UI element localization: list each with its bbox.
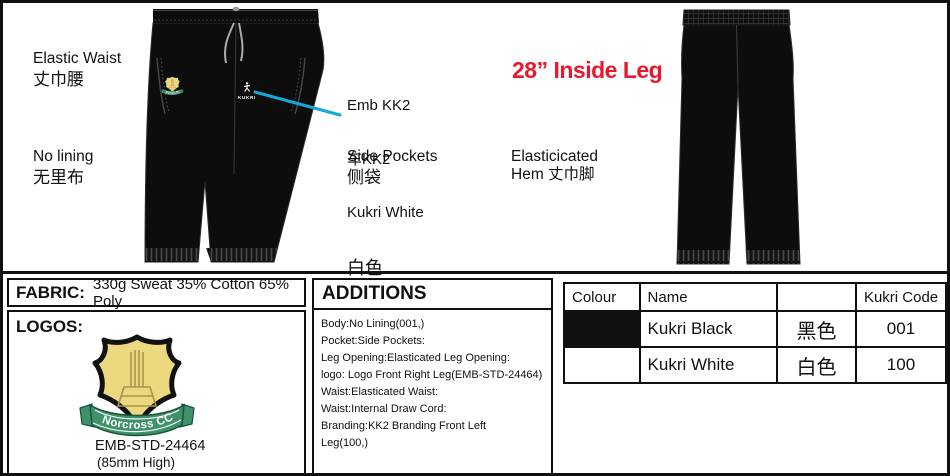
label-inside-leg: 28” Inside Leg (512, 57, 662, 83)
colour-table-header: Colour Name Kukri Code (564, 283, 946, 311)
colour-code: 001 (856, 311, 946, 347)
additions-box: ADDITIONS Body:No Lining(001,) Pocket:Si… (312, 278, 553, 475)
additions-list: Body:No Lining(001,) Pocket:Side Pockets… (314, 310, 551, 452)
label-elastic-waist-zh: 丈巾腰 (33, 70, 84, 90)
label-kukri-white: Kukri White (347, 204, 424, 221)
colour-table: Colour Name Kukri Code Kukri Black 黑色 00… (563, 282, 947, 384)
label-side-pockets: Side Pockets (347, 148, 437, 166)
crest-code: EMB-STD-24464 (95, 438, 205, 454)
addition-item: Waist:Elasticated Waist: (321, 384, 545, 401)
colour-name: Kukri White (640, 347, 778, 383)
header-name: Name (640, 283, 778, 311)
addition-item: Leg Opening:Elasticated Leg Opening: (321, 350, 545, 367)
pants-front-illustration: KUKRI (144, 6, 326, 268)
fabric-label: FABRIC: (16, 283, 85, 303)
table-row: Kukri Black 黑色 001 (564, 311, 946, 347)
ribbed-hem-left (677, 250, 730, 264)
addition-item: Branding:KK2 Branding Front Left Leg(100… (321, 418, 545, 452)
ribbed-hem-right (747, 250, 800, 264)
garment-views-section: KUKRI Elastic Waist 丈巾腰 No lining 无里布 Em… (3, 3, 947, 269)
label-emb-kk2: Emb KK2 (347, 97, 424, 114)
logos-box: LOGOS: EMB-STD-24464 (85mm High) (7, 310, 306, 475)
addition-item: Pocket:Side Pockets: (321, 333, 545, 350)
swatch-kukri-white (564, 347, 640, 383)
label-elasticated-hem: Elasticicated (511, 148, 598, 166)
label-elastic-waist: Elastic Waist (33, 50, 121, 68)
section-divider (3, 271, 947, 274)
swatch-kukri-black (564, 311, 640, 347)
addition-item: Body:No Lining(001,) (321, 316, 545, 333)
pants-back-illustration (671, 6, 805, 268)
label-side-pockets-zh: 侧袋 (347, 168, 381, 188)
label-elasticated-hem-zh: Hem 丈巾脚 (511, 166, 595, 184)
ribbed-hem-left (145, 248, 199, 262)
header-colour: Colour (564, 283, 640, 311)
colour-code: 100 (856, 347, 946, 383)
elastic-waistband (683, 10, 790, 25)
colour-name-zh: 黑色 (777, 311, 856, 347)
colour-name-zh: 白色 (777, 347, 856, 383)
fabric-box: FABRIC: 330g Sweat 35% Cotton 65% Poly (7, 278, 306, 307)
kukri-wordmark: KUKRI (238, 95, 256, 100)
spec-sheet: KUKRI Elastic Waist 丈巾腰 No lining 无里布 Em… (0, 0, 950, 476)
addition-item: Waist:Internal Draw Cord: (321, 401, 545, 418)
header-zh (777, 283, 856, 311)
colour-name: Kukri Black (640, 311, 778, 347)
label-kukri-white-zh: 白色 (347, 258, 424, 278)
label-no-lining-zh: 无里布 (33, 168, 84, 188)
club-crest (77, 330, 199, 440)
drawcord-knot (233, 7, 240, 11)
label-no-lining: No lining (33, 148, 93, 166)
addition-item: logo: Logo Front Right Leg(EMB-STD-24464… (321, 367, 545, 384)
table-row: Kukri White 白色 100 (564, 347, 946, 383)
additions-title: ADDITIONS (314, 280, 551, 310)
crest-size: (85mm High) (97, 455, 175, 470)
ribbed-hem-right (206, 248, 277, 262)
header-kukri-code: Kukri Code (856, 283, 946, 311)
fabric-value: 330g Sweat 35% Cotton 65% Poly (93, 276, 304, 310)
